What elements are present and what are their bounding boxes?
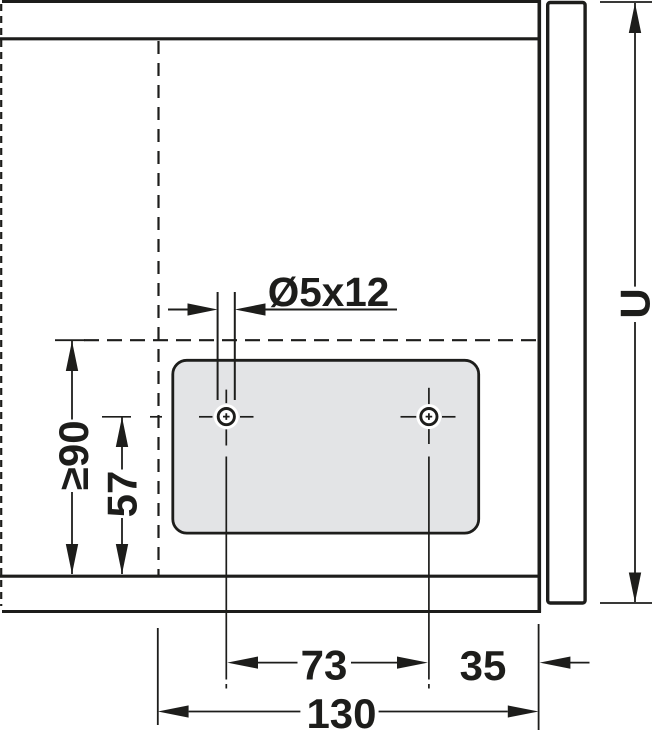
svg-text:73: 73: [301, 642, 348, 689]
svg-text:U: U: [612, 288, 652, 318]
svg-text:130: 130: [306, 690, 376, 730]
svg-text:≥90: ≥90: [50, 420, 97, 490]
svg-text:57: 57: [99, 471, 146, 518]
svg-text:35: 35: [460, 642, 507, 689]
svg-text:Ø5x12: Ø5x12: [268, 269, 390, 315]
